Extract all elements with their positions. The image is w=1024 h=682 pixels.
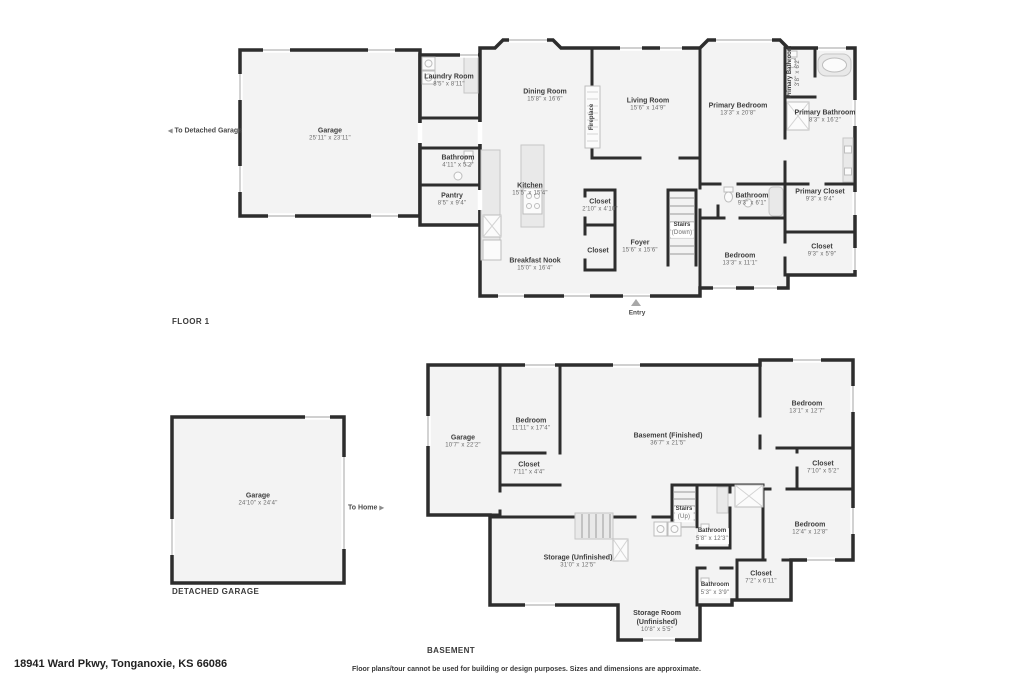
room-name: Closet	[808, 243, 836, 252]
room-label-b-bathroom-lower: Bathroom 5'3" x 3'9"	[700, 582, 730, 598]
room-name: Bathroom	[441, 154, 474, 163]
floor1-plan	[168, 38, 860, 323]
room-dims: 8'3" x 16'2"	[794, 118, 855, 126]
floorplan-page: Garage 25'11" x 23'11" Laundry Room 8'5"…	[0, 0, 1024, 682]
room-dims: 11'11" x 17'4"	[512, 426, 550, 434]
room-dims: 36'7" x 21'5"	[634, 441, 703, 449]
room-dims: 31'0" x 12'5"	[544, 563, 613, 571]
shower-icon	[735, 485, 763, 507]
entry-text: Entry	[629, 310, 646, 317]
room-dims: 7'2" x 6'11"	[745, 579, 777, 587]
room-label-f1-bedroom: Bedroom 13'3" x 11'1"	[722, 252, 757, 269]
disclaimer-text: Floor plans/tour cannot be used for buil…	[352, 666, 701, 673]
room-dims: 25'11" x 23'11"	[309, 136, 351, 144]
room-label-f1-garage: Garage 25'11" x 23'11"	[309, 127, 351, 144]
room-name: Bedroom	[512, 417, 550, 426]
room-name: Dining Room	[523, 88, 567, 97]
room-name: Stairs	[675, 506, 694, 514]
room-dims: 5'3" x 3'9"	[700, 590, 730, 598]
room-name: Closet	[513, 461, 545, 470]
entry-label: Entry	[629, 310, 646, 317]
room-label-f1-closet-bedroom: Closet 9'3" x 5'9"	[808, 243, 836, 260]
room-name: Fireplace	[589, 104, 597, 130]
room-dims: 13'1" x 12'7"	[789, 409, 825, 417]
room-label-b-bedroom-upper-right: Bedroom 13'1" x 12'7"	[789, 400, 825, 417]
room-label-f1-foyer: Foyer 15'6" x 15'6"	[622, 239, 658, 256]
right-arrow-icon: ▶	[379, 506, 384, 512]
room-dims: 9'3" x 9'4"	[795, 197, 844, 205]
room-name: Closet	[582, 198, 618, 207]
room-dims: 15'6" x 14'9"	[627, 106, 669, 114]
room-name: Pantry	[438, 192, 466, 201]
room-dims: 15'0" x 16'4"	[509, 266, 560, 274]
room-label-b-storage: Storage (Unfinished) 31'0" x 12'5"	[544, 554, 613, 571]
room-name: Storage Room (Unfinished)	[628, 609, 686, 627]
bathtub-icon	[818, 54, 851, 76]
room-label-b-closet-left: Closet 7'11" x 4'4"	[513, 461, 545, 478]
room-name: Bathroom	[700, 582, 730, 590]
room-name: Bathroom	[695, 528, 729, 536]
room-dims: 9'3" x 5'9"	[808, 252, 836, 260]
left-arrow-icon: ◀	[168, 129, 173, 135]
room-label-f1-stairs: Stairs (Down)	[671, 222, 694, 238]
room-label-b-closet-lower-right: Closet 7'2" x 6'11"	[745, 570, 777, 587]
room-dims: (Up)	[675, 514, 694, 522]
detached-garage-title: DETACHED GARAGE	[172, 587, 259, 596]
room-dims: 12'4" x 12'8"	[792, 530, 828, 538]
room-name: Bedroom	[722, 252, 757, 261]
room-name: Closet	[745, 570, 777, 579]
room-label-b-garage: Garage 10'7" x 22'2"	[445, 434, 481, 451]
room-label-f1-primary-bathroom-small: Primary Bathroom 3'8" x 6'2"	[787, 46, 803, 98]
room-label-f1-closet-foyer: Closet	[587, 246, 608, 255]
room-label-f1-closet-hall: Closet 2'10" x 4'10"	[582, 198, 618, 215]
washer-dryer-icon	[654, 522, 681, 536]
room-dims: 15'6" x 15'6"	[622, 248, 658, 256]
room-label-f1-bathroom-hall: Bathroom 4'11" x 5'2"	[441, 154, 474, 171]
room-dims: (Down)	[671, 230, 694, 238]
room-label-f1-laundry: Laundry Room 8'5" x 8'11"	[424, 73, 473, 90]
to-home-text: To Home	[348, 505, 377, 512]
room-name: Garage	[238, 492, 277, 501]
room-name: Bedroom	[789, 400, 825, 409]
room-dims: 7'10" x 5'2"	[807, 469, 839, 477]
room-name: Stairs	[671, 222, 694, 230]
basement-title: BASEMENT	[427, 646, 475, 655]
room-dims: 24'10" x 24'4"	[238, 501, 277, 509]
room-dims: 13'3" x 11'1"	[722, 261, 757, 269]
room-label-f1-dining: Dining Room 15'8" x 16'6"	[523, 88, 567, 105]
room-label-f1-kitchen: Kitchen 15'5" x 15'4"	[512, 182, 548, 199]
room-dims: 8'5" x 9'4"	[438, 201, 466, 209]
room-label-b-bathroom-upper: Bathroom 5'8" x 12'3"	[695, 528, 729, 544]
room-dims: 4'11" x 5'2"	[441, 163, 474, 171]
room-label-b-bedroom-left: Bedroom 11'11" x 17'4"	[512, 417, 550, 434]
room-name: Storage (Unfinished)	[544, 554, 613, 563]
water-heater-icon	[613, 539, 628, 561]
room-label-f1-fireplace: Fireplace	[589, 104, 597, 130]
room-name: Garage	[445, 434, 481, 443]
room-name: Living Room	[627, 97, 669, 106]
room-name: Primary Bathroom	[787, 46, 795, 98]
to-home-label: To Home ▶	[348, 505, 384, 512]
room-label-f1-primary-bathroom: Primary Bathroom 8'3" x 16'2"	[794, 109, 855, 126]
room-name: Kitchen	[512, 182, 548, 191]
room-label-b-bedroom-lower-right: Bedroom 12'4" x 12'8"	[792, 521, 828, 538]
room-name: Breakfast Nook	[509, 257, 560, 266]
property-address: 18941 Ward Pkwy, Tonganoxie, KS 66086	[14, 658, 227, 670]
room-name: Closet	[807, 460, 839, 469]
room-name: Laundry Room	[424, 73, 473, 82]
room-name: Primary Bedroom	[709, 102, 768, 111]
room-dims: 7'11" x 4'4"	[513, 470, 545, 478]
room-label-f1-pantry: Pantry 8'5" x 9'4"	[438, 192, 466, 209]
room-name: Bedroom	[792, 521, 828, 530]
room-label-f1-primary-closet: Primary Closet 9'3" x 9'4"	[795, 188, 844, 205]
room-label-b-storage-room: Storage Room (Unfinished) 10'8" x 5'5"	[628, 609, 686, 635]
room-name: Garage	[309, 127, 351, 136]
room-label-b-closet-upper-right: Closet 7'10" x 5'2"	[807, 460, 839, 477]
room-dims: 15'8" x 16'6"	[523, 97, 567, 105]
entry-arrow-icon	[631, 299, 641, 306]
room-dims: 2'10" x 4'10"	[582, 207, 618, 215]
room-label-f1-primary-bedroom: Primary Bedroom 13'3" x 20'8"	[709, 102, 768, 119]
room-name: Primary Bathroom	[794, 109, 855, 118]
room-dims: 15'5" x 15'4"	[512, 191, 548, 199]
room-label-b-finished: Basement (Finished) 36'7" x 21'5"	[634, 432, 703, 449]
room-name: Bathroom	[735, 192, 768, 201]
room-name: Foyer	[622, 239, 658, 248]
dishwasher-icon	[483, 240, 501, 260]
to-detached-garage-text: To Detached Garage	[175, 128, 243, 135]
room-dims: 9'3" x 6'1"	[735, 201, 768, 209]
room-dims: 10'7" x 22'2"	[445, 443, 481, 451]
room-dims: 3'8" x 6'2"	[795, 46, 803, 98]
room-dims: 10'8" x 5'5"	[628, 627, 686, 635]
room-name: Closet	[587, 246, 608, 255]
room-label-f1-breakfast-nook: Breakfast Nook 15'0" x 16'4"	[509, 257, 560, 274]
stair-flight-fixture	[575, 513, 613, 539]
floor1-title: FLOOR 1	[172, 317, 209, 326]
room-dims: 13'3" x 20'8"	[709, 111, 768, 119]
room-label-b-stairs: Stairs (Up)	[675, 506, 694, 522]
room-name: Basement (Finished)	[634, 432, 703, 441]
room-label-f1-living: Living Room 15'6" x 14'9"	[627, 97, 669, 114]
room-name: Primary Closet	[795, 188, 844, 197]
to-detached-garage-label: ◀ To Detached Garage	[168, 128, 242, 135]
fridge-icon	[483, 215, 501, 237]
room-label-f1-bathroom: Bathroom 9'3" x 6'1"	[735, 192, 768, 209]
room-dims: 5'8" x 12'3"	[695, 536, 729, 544]
room-label-dg-garage: Garage 24'10" x 24'4"	[238, 492, 277, 509]
room-dims: 8'5" x 8'11"	[424, 82, 473, 90]
